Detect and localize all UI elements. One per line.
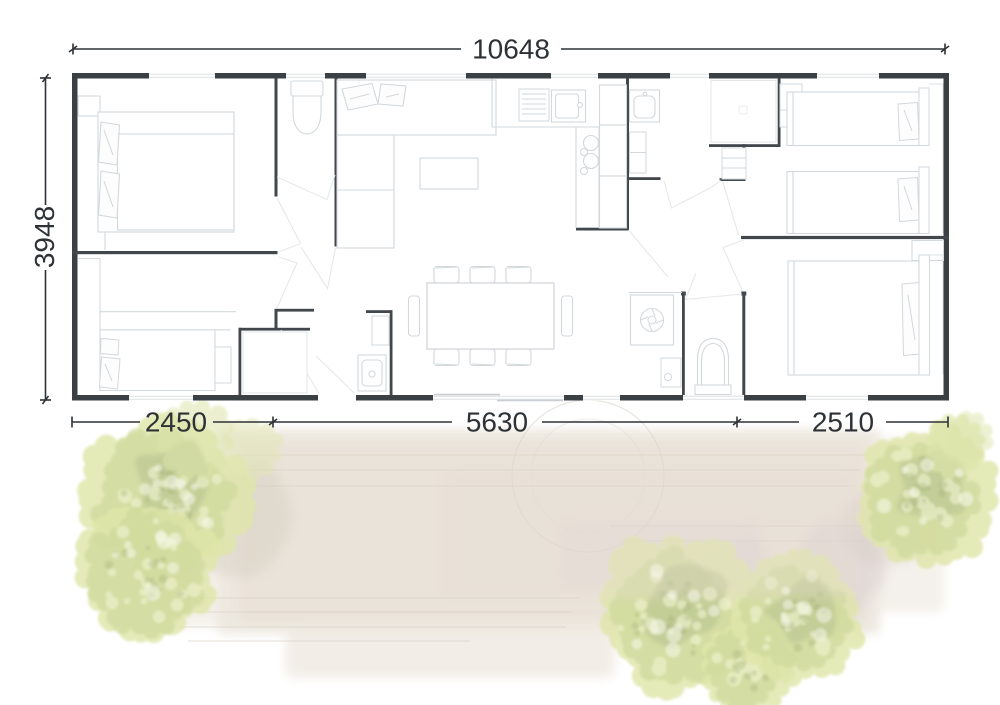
svg-text:2450: 2450 bbox=[145, 407, 207, 438]
svg-text:3948: 3948 bbox=[29, 206, 60, 268]
svg-text:2510: 2510 bbox=[812, 407, 874, 438]
svg-text:5630: 5630 bbox=[466, 407, 528, 438]
svg-text:10648: 10648 bbox=[472, 34, 550, 65]
